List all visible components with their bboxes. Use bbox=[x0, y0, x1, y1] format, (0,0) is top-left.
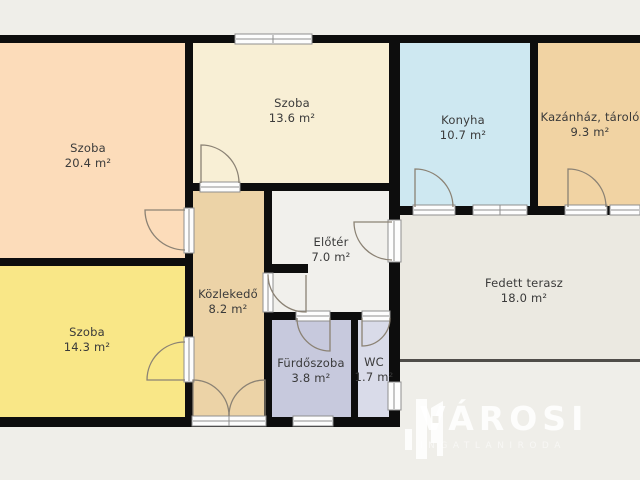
brand-logo: VÁROSI INGATLANIRODA bbox=[404, 396, 588, 451]
label-terasz: Fedett terasz 18.0 m² bbox=[485, 276, 563, 306]
brand-text: VÁROSI INGATLANIRODA bbox=[420, 402, 588, 451]
label-konyha: Konyha 10.7 m² bbox=[440, 113, 486, 143]
wall-konyha-kazanhaz bbox=[530, 35, 538, 214]
room-area: 18.0 m² bbox=[485, 291, 563, 306]
room-area: 7.0 m² bbox=[312, 250, 351, 265]
label-kozlekedo: Közlekedő 8.2 m² bbox=[198, 287, 258, 317]
room-name: Fedett terasz bbox=[485, 276, 563, 291]
building-window bbox=[433, 416, 439, 423]
wall-between-szoba-1-3 bbox=[0, 258, 193, 266]
room-name: Konyha bbox=[440, 113, 486, 128]
room-area: 20.4 m² bbox=[65, 156, 111, 171]
label-szoba-2: Szoba 13.6 m² bbox=[269, 96, 315, 126]
building-shape-right bbox=[431, 401, 443, 456]
room-name: Fürdőszoba bbox=[277, 356, 345, 371]
room-name: WC bbox=[355, 355, 394, 370]
label-szoba-3: Szoba 14.3 m² bbox=[64, 325, 110, 355]
buildings-icon bbox=[404, 396, 444, 462]
room-area: 13.6 m² bbox=[269, 111, 315, 126]
building-bar-tall bbox=[416, 399, 427, 459]
building-bar-small bbox=[405, 429, 412, 450]
label-wc: WC 1.7 m² bbox=[355, 355, 394, 385]
wall-top bbox=[0, 35, 640, 43]
floor-plan: Szoba 20.4 m² Szoba 13.6 m² Konyha 10.7 … bbox=[0, 0, 640, 480]
room-name: Előtér bbox=[312, 235, 351, 250]
label-kazanhaz: Kazánház, tároló 9.3 m² bbox=[541, 110, 640, 140]
label-eloter: Előtér 7.0 m² bbox=[312, 235, 351, 265]
room-area: 10.7 m² bbox=[440, 128, 486, 143]
brand-subtitle: INGATLANIRODA bbox=[420, 441, 588, 451]
room-area: 3.8 m² bbox=[277, 371, 345, 386]
room-area: 14.3 m² bbox=[64, 340, 110, 355]
room-name: Közlekedő bbox=[198, 287, 258, 302]
room-name: Szoba bbox=[269, 96, 315, 111]
brand-name: VÁROSI bbox=[420, 402, 588, 436]
room-area: 8.2 m² bbox=[198, 302, 258, 317]
room-name: Kazánház, tároló bbox=[541, 110, 640, 125]
label-furdoszoba: Fürdőszoba 3.8 m² bbox=[277, 356, 345, 386]
room-area: 1.7 m² bbox=[355, 370, 394, 385]
room-name: Szoba bbox=[64, 325, 110, 340]
terrace-edge-line bbox=[400, 359, 640, 362]
room-area: 9.3 m² bbox=[541, 125, 640, 140]
room-name: Szoba bbox=[65, 141, 111, 156]
label-szoba-1: Szoba 20.4 m² bbox=[65, 141, 111, 171]
